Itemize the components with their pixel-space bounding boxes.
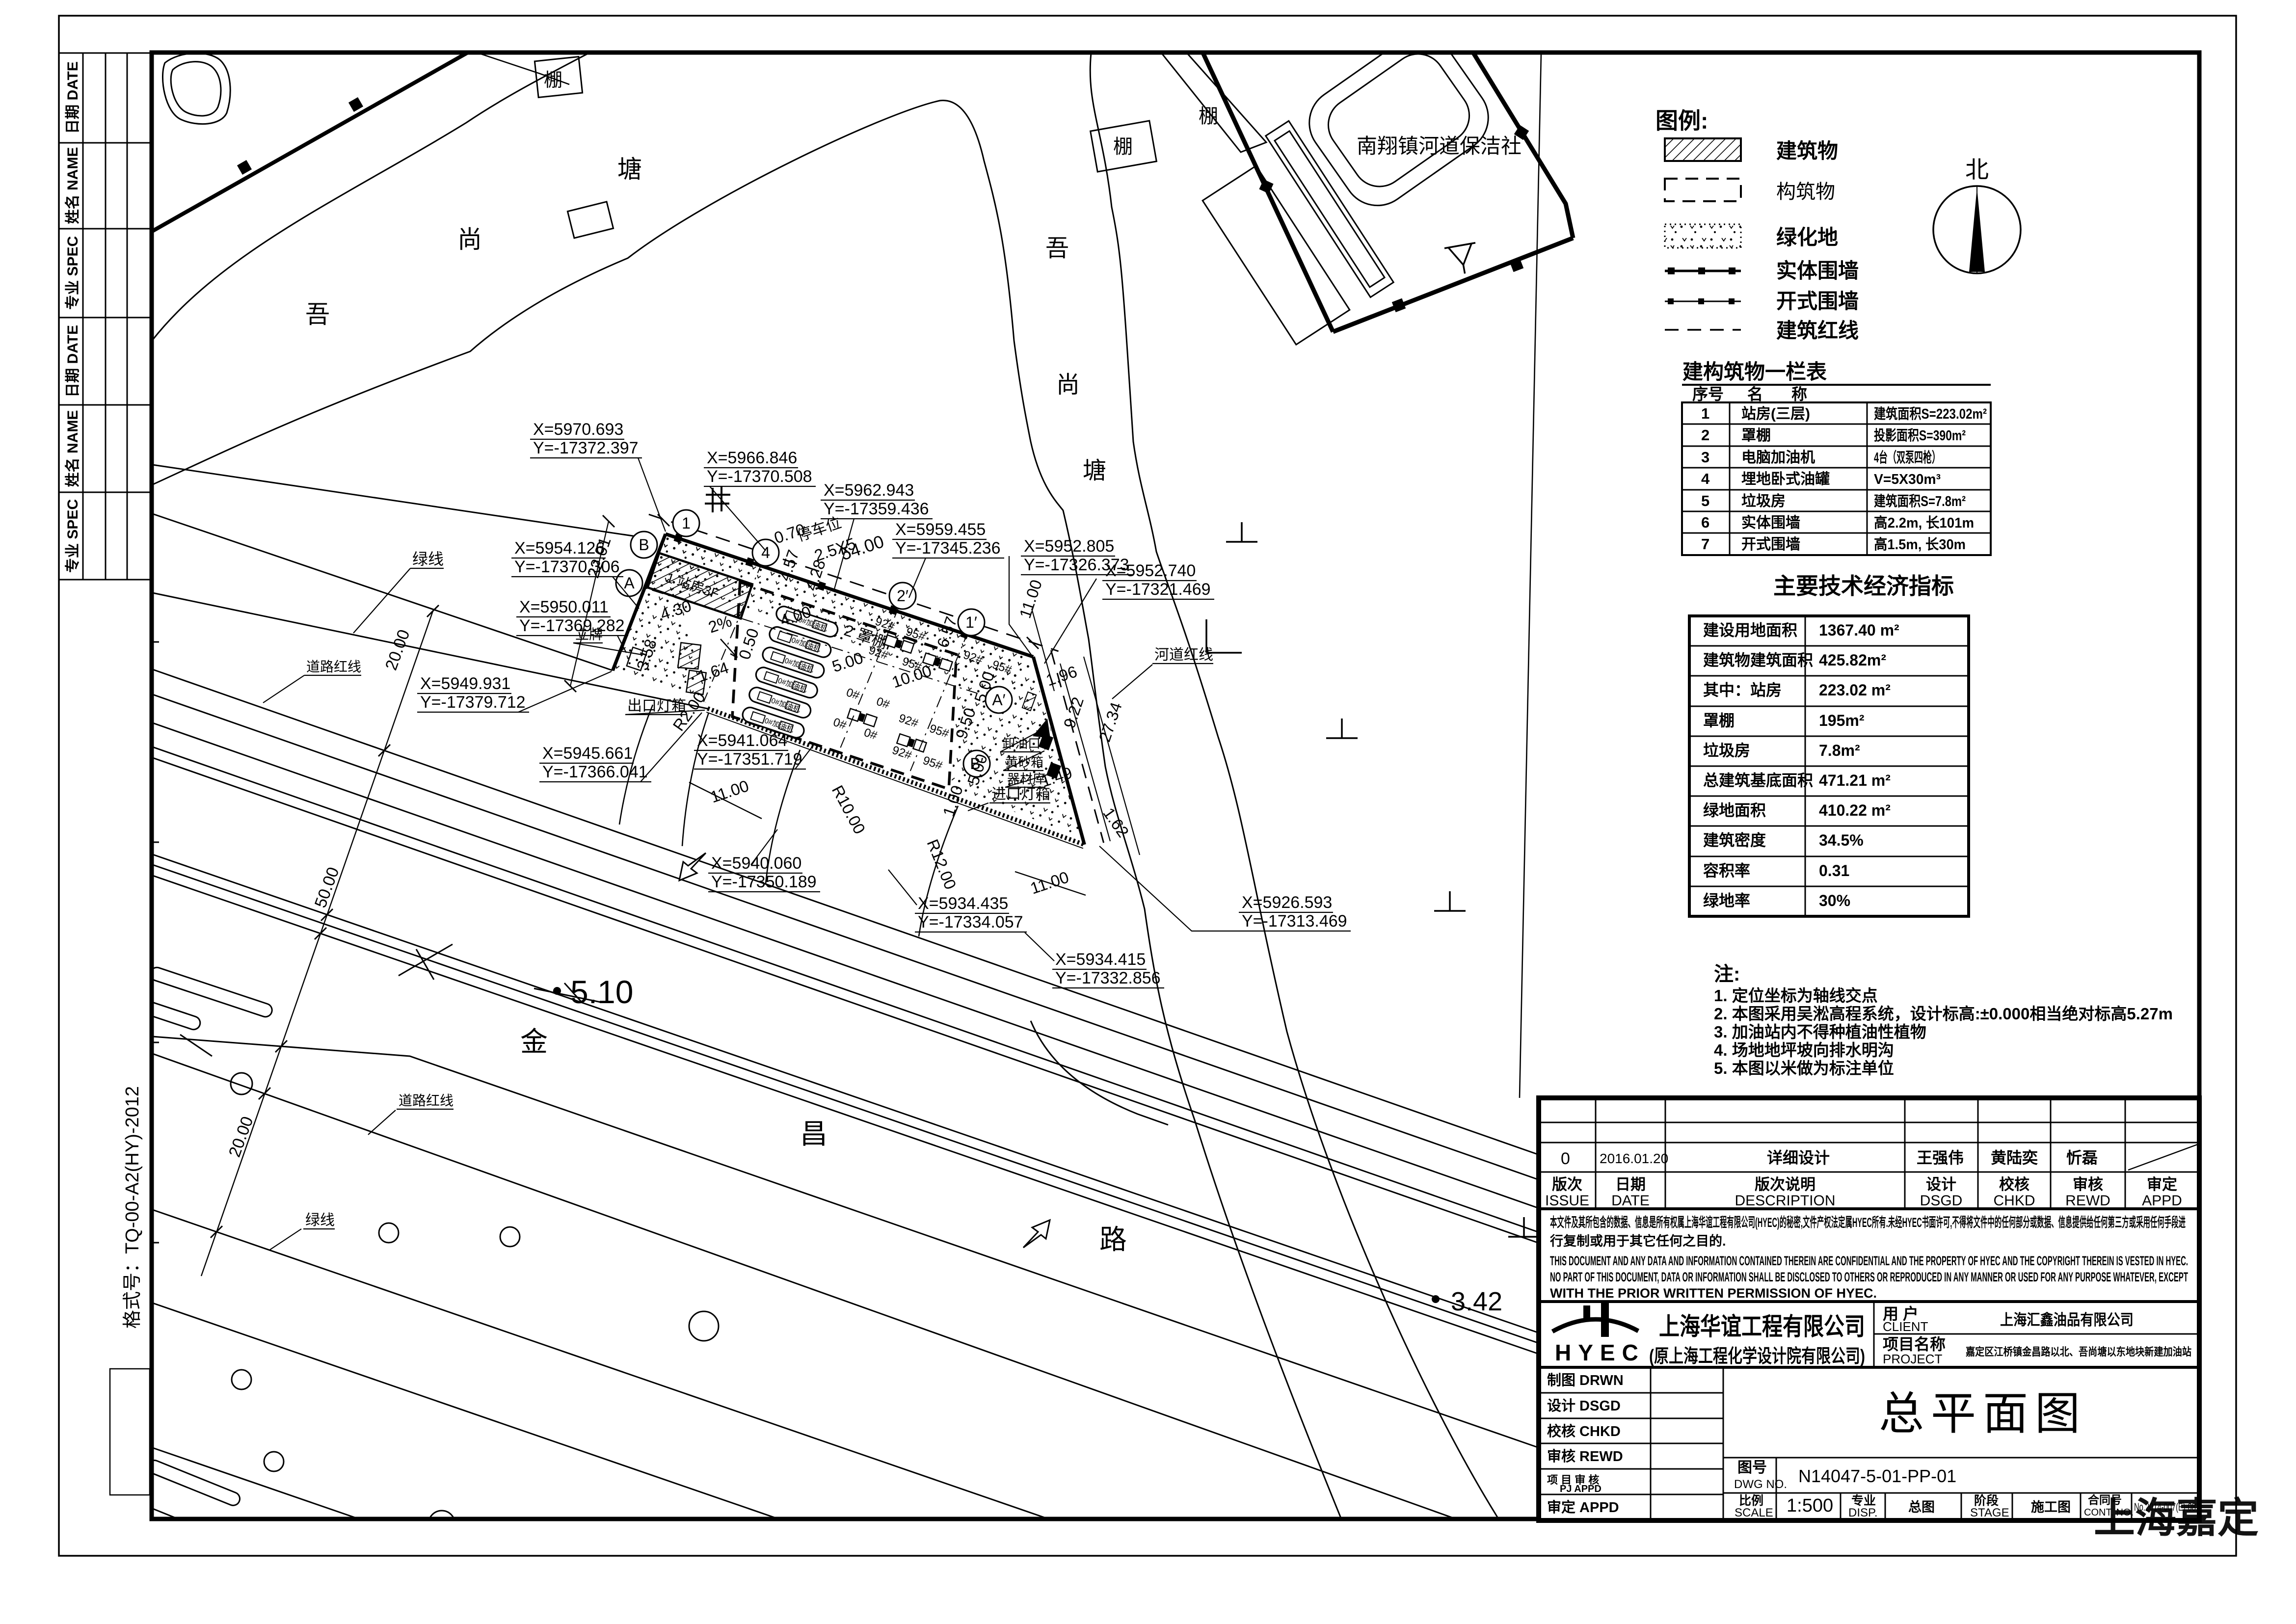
svg-text:223.02 m²: 223.02 m²: [1819, 681, 1891, 699]
svg-text:版次: 版次: [1552, 1176, 1582, 1193]
svg-text:实体围墙: 实体围墙: [1776, 259, 1859, 282]
svg-text:建设用地面积: 建设用地面积: [1703, 621, 1797, 639]
svg-text:1′: 1′: [965, 613, 977, 631]
svg-text:Y=-17345.236: Y=-17345.236: [895, 539, 1001, 558]
svg-text:STAGE: STAGE: [1970, 1506, 2009, 1519]
svg-text:高1.5m, 长30m: 高1.5m, 长30m: [1874, 536, 1966, 553]
svg-text:图号: 图号: [1737, 1460, 1767, 1476]
svg-text:嘉定区江桥镇金昌路以北、吾尚塘以东地块新建加油站: 嘉定区江桥镇金昌路以北、吾尚塘以东地块新建加油站: [1966, 1346, 2191, 1358]
svg-text:34.5%: 34.5%: [1819, 831, 1864, 849]
svg-text:DESCRIPTION: DESCRIPTION: [1735, 1193, 1835, 1209]
svg-text:Y=-17369.282: Y=-17369.282: [519, 616, 625, 635]
svg-text:站房(三层): 站房(三层): [1741, 406, 1810, 422]
svg-text:专业: 专业: [1851, 1493, 1876, 1508]
svg-text:Y=-17350.189: Y=-17350.189: [711, 873, 817, 891]
svg-text:1367.40 m²: 1367.40 m²: [1819, 621, 1899, 639]
svg-text:X=5959.455: X=5959.455: [895, 520, 986, 539]
svg-text:1:500: 1:500: [1787, 1495, 1833, 1516]
svg-text:其中：站房: 其中：站房: [1703, 681, 1782, 699]
svg-text:上海嘉定: 上海嘉定: [2094, 1495, 2259, 1541]
svg-text:总图: 总图: [1908, 1500, 1935, 1515]
svg-text:高2.2m, 长101m: 高2.2m, 长101m: [1874, 515, 1974, 531]
svg-text:APPD: APPD: [2142, 1193, 2182, 1209]
svg-text:罩棚: 罩棚: [1741, 427, 1771, 444]
svg-text:DSGD: DSGD: [1920, 1193, 1963, 1209]
svg-text:专业 SPEC: 专业 SPEC: [65, 499, 81, 573]
svg-text:V=5X30m³: V=5X30m³: [1874, 472, 1941, 487]
svg-text:器材库: 器材库: [1007, 772, 1045, 786]
svg-text:X=5926.593: X=5926.593: [1242, 893, 1332, 912]
svg-text:绿化地: 绿化地: [1776, 226, 1838, 249]
svg-text:B: B: [639, 536, 649, 554]
svg-text:立牌: 立牌: [575, 627, 603, 642]
svg-text:详细设计: 详细设计: [1767, 1149, 1830, 1167]
svg-text:南翔镇河道保洁社: 南翔镇河道保洁社: [1357, 134, 1522, 158]
svg-text:Y=-17313.469: Y=-17313.469: [1242, 912, 1347, 931]
svg-text:3. 加油站内不得种植油性植物: 3. 加油站内不得种植油性植物: [1714, 1023, 1926, 1041]
svg-text:471.21 m²: 471.21 m²: [1819, 772, 1891, 789]
svg-text:制图 DRWN: 制图 DRWN: [1547, 1372, 1624, 1388]
svg-text:1: 1: [682, 514, 691, 532]
svg-text:序号: 序号: [1692, 385, 1724, 403]
svg-text:REWD: REWD: [2065, 1193, 2110, 1209]
svg-text:Y=-17321.469: Y=-17321.469: [1105, 580, 1211, 599]
svg-text:审定 APPD: 审定 APPD: [1547, 1499, 1619, 1516]
svg-text:版次说明: 版次说明: [1755, 1176, 1815, 1193]
svg-text:金: 金: [520, 1026, 548, 1057]
svg-text:王强伟: 王强伟: [1917, 1149, 1964, 1167]
svg-text:Y=-17351.719: Y=-17351.719: [697, 750, 802, 769]
svg-text:项目名称: 项目名称: [1883, 1335, 1946, 1353]
svg-text:本文件及其所包含的数据、信息是所有权属上海华谊工程有限公司(: 本文件及其所包含的数据、信息是所有权属上海华谊工程有限公司(HYEC)的秘密,文…: [1550, 1215, 2186, 1230]
svg-text:A′: A′: [992, 691, 1005, 709]
svg-text:4台（双泵四枪）: 4台（双泵四枪）: [1874, 449, 1941, 466]
svg-text:实体围墙: 实体围墙: [1741, 514, 1800, 531]
svg-text:垃圾房: 垃圾房: [1741, 493, 1786, 509]
svg-text:专业 SPEC: 专业 SPEC: [65, 236, 81, 310]
svg-text:2. 本图采用吴淞高程系统，设计标高:±0.000相当绝对标: 2. 本图采用吴淞高程系统，设计标高:±0.000相当绝对标高5.27m: [1714, 1005, 2173, 1023]
svg-text:建筑物建筑面积: 建筑物建筑面积: [1703, 651, 1813, 669]
svg-text:0.31: 0.31: [1819, 862, 1849, 879]
svg-text:日期: 日期: [1615, 1176, 1646, 1193]
svg-text:吾: 吾: [305, 301, 330, 328]
svg-text:CLIENT: CLIENT: [1883, 1319, 1928, 1334]
svg-text:格式号：TQ-00-A2(HY)-2012: 格式号：TQ-00-A2(HY)-2012: [122, 1086, 143, 1329]
svg-text:CHKD: CHKD: [1993, 1193, 2035, 1209]
svg-text:1: 1: [1701, 405, 1709, 422]
svg-text:X=5952.805: X=5952.805: [1024, 537, 1114, 556]
svg-text:X=5949.931: X=5949.931: [420, 674, 510, 693]
svg-text:进口灯箱: 进口灯箱: [991, 786, 1050, 802]
svg-text:河道红线: 河道红线: [1154, 647, 1213, 663]
svg-text:建筑面积S=223.02m²: 建筑面积S=223.02m²: [1874, 406, 1987, 422]
svg-text:尚: 尚: [457, 226, 482, 253]
svg-text:A: A: [624, 574, 635, 592]
svg-text:Y=-17334.057: Y=-17334.057: [918, 913, 1023, 932]
svg-text:SCALE: SCALE: [1735, 1506, 1773, 1519]
svg-text:DISP.: DISP.: [1848, 1506, 1878, 1519]
svg-text:7: 7: [1701, 535, 1709, 553]
svg-text:2′: 2′: [897, 587, 908, 605]
svg-text:DWG NO.: DWG NO.: [1734, 1478, 1787, 1491]
svg-text:X=5952.740: X=5952.740: [1105, 561, 1196, 580]
svg-text:3.42: 3.42: [1451, 1287, 1502, 1316]
svg-text:注:: 注:: [1714, 963, 1740, 985]
svg-text:图例:: 图例:: [1655, 108, 1708, 133]
svg-text:绿地面积: 绿地面积: [1703, 801, 1766, 819]
svg-text:姓名 NAME: 姓名 NAME: [65, 410, 81, 487]
svg-text:Y=-17370.306: Y=-17370.306: [514, 558, 620, 576]
svg-text:5.10: 5.10: [570, 974, 633, 1010]
svg-text:Y=-17370.508: Y=-17370.508: [707, 467, 812, 486]
svg-text:埋地卧式油罐: 埋地卧式油罐: [1741, 471, 1830, 487]
svg-text:30%: 30%: [1819, 892, 1850, 909]
svg-text:上海汇鑫油品有限公司: 上海汇鑫油品有限公司: [2000, 1311, 2134, 1329]
svg-text:日期 DATE: 日期 DATE: [65, 61, 81, 134]
svg-text:棚: 棚: [544, 70, 562, 91]
svg-text:(原上海工程化学设计院有限公司): (原上海工程化学设计院有限公司): [1649, 1346, 1865, 1367]
svg-text:审核 REWD: 审核 REWD: [1547, 1448, 1623, 1464]
svg-text:HYEC: HYEC: [1555, 1340, 1645, 1365]
svg-text:DATE: DATE: [1611, 1193, 1650, 1209]
svg-text:Y=-17359.436: Y=-17359.436: [824, 500, 929, 518]
svg-text:塘: 塘: [1083, 458, 1106, 484]
svg-text:WITH THE PRIOR WRITTEN PERMISS: WITH THE PRIOR WRITTEN PERMISSION OF HYE…: [1550, 1286, 1877, 1301]
svg-text:罩棚: 罩棚: [1703, 712, 1735, 729]
svg-text:X=5941.064: X=5941.064: [697, 731, 787, 750]
svg-text:PJ APPD: PJ APPD: [1560, 1484, 1602, 1494]
svg-text:校核 CHKD: 校核 CHKD: [1547, 1423, 1621, 1439]
svg-text:THIS DOCUMENT AND ANY DATA AND: THIS DOCUMENT AND ANY DATA AND INFORMATI…: [1550, 1253, 2188, 1268]
svg-text:姓名 NAME: 姓名 NAME: [65, 147, 81, 224]
svg-text:忻磊: 忻磊: [2066, 1149, 2098, 1167]
svg-text:北: 北: [1965, 157, 1989, 183]
svg-text:X=5934.415: X=5934.415: [1055, 950, 1146, 969]
svg-text:吾: 吾: [1045, 236, 1069, 262]
svg-text:审定: 审定: [2147, 1176, 2177, 1193]
svg-text:绿线: 绿线: [412, 550, 444, 568]
svg-text:ISSUE: ISSUE: [1545, 1193, 1589, 1209]
svg-text:校核: 校核: [1999, 1176, 2029, 1193]
svg-text:X=5950.011: X=5950.011: [519, 598, 609, 616]
svg-text:塘: 塘: [617, 156, 642, 183]
svg-text:X=5954.126: X=5954.126: [514, 539, 605, 558]
svg-text:设计 DSGD: 设计 DSGD: [1547, 1398, 1621, 1414]
svg-text:比例: 比例: [1739, 1494, 1763, 1508]
svg-text:行复制或用于其它任何之目的.: 行复制或用于其它任何之目的.: [1549, 1233, 1726, 1249]
svg-text:日期 DATE: 日期 DATE: [65, 325, 81, 398]
svg-text:审核: 审核: [2073, 1176, 2103, 1193]
svg-text:1. 定位坐标为轴线交点: 1. 定位坐标为轴线交点: [1714, 986, 1878, 1005]
svg-text:410.22 m²: 410.22 m²: [1819, 801, 1891, 819]
svg-text:绿地率: 绿地率: [1703, 892, 1750, 909]
svg-text:2016.01.20: 2016.01.20: [1600, 1151, 1668, 1166]
svg-text:阶段: 阶段: [1974, 1493, 1999, 1508]
svg-text:建筑红线: 建筑红线: [1776, 319, 1859, 342]
svg-text:PROJECT: PROJECT: [1883, 1352, 1942, 1366]
svg-text:构筑物: 构筑物: [1776, 181, 1835, 203]
svg-text:X=5962.943: X=5962.943: [824, 481, 914, 500]
svg-text:7.8m²: 7.8m²: [1819, 742, 1860, 759]
svg-text:6: 6: [1701, 514, 1709, 531]
svg-text:电脑加油机: 电脑加油机: [1741, 450, 1815, 466]
svg-text:投影面积S=390m²: 投影面积S=390m²: [1874, 427, 1966, 444]
svg-text:建筑密度: 建筑密度: [1703, 831, 1766, 849]
svg-text:尚: 尚: [1056, 372, 1080, 398]
svg-text:195m²: 195m²: [1819, 712, 1865, 729]
svg-text:Y=-17332.856: Y=-17332.856: [1055, 969, 1161, 987]
svg-text:施工图: 施工图: [2031, 1500, 2071, 1515]
svg-text:总平面图: 总平面图: [1879, 1389, 2087, 1439]
svg-text:昌: 昌: [800, 1118, 828, 1149]
svg-text:设计: 设计: [1926, 1176, 1956, 1193]
svg-text:开式围墙: 开式围墙: [1776, 290, 1859, 313]
svg-text:X=5966.846: X=5966.846: [707, 449, 797, 467]
svg-text:3: 3: [1701, 449, 1709, 466]
svg-text:4. 场地地坪坡向排水明沟: 4. 场地地坪坡向排水明沟: [1714, 1041, 1894, 1059]
svg-text:道路红线: 道路红线: [399, 1093, 454, 1108]
svg-text:N14047-5-01-PP-01: N14047-5-01-PP-01: [1798, 1466, 1956, 1486]
svg-text:X=5970.693: X=5970.693: [533, 420, 623, 439]
svg-text:2: 2: [1701, 426, 1709, 444]
svg-text:上海华谊工程有限公司: 上海华谊工程有限公司: [1659, 1313, 1865, 1340]
svg-text:X=5934.435: X=5934.435: [918, 894, 1008, 913]
svg-text:5: 5: [1701, 492, 1709, 509]
svg-text:黄陆奕: 黄陆奕: [1991, 1149, 2038, 1167]
svg-text:称: 称: [1791, 385, 1807, 403]
svg-text:Y=-17366.041: Y=-17366.041: [542, 763, 648, 781]
svg-text:Y=-17372.397: Y=-17372.397: [533, 439, 639, 457]
svg-text:卸油口: 卸油口: [1002, 736, 1041, 751]
svg-text:4: 4: [1701, 470, 1710, 487]
svg-text:路: 路: [1099, 1224, 1127, 1255]
svg-text:垃圾房: 垃圾房: [1703, 742, 1750, 759]
svg-text:绿线: 绿线: [305, 1212, 335, 1228]
svg-text:425.82m²: 425.82m²: [1819, 651, 1886, 669]
svg-text:棚: 棚: [1199, 106, 1218, 127]
svg-text:建构筑物一栏表: 建构筑物一栏表: [1682, 360, 1827, 383]
svg-text:0: 0: [1561, 1149, 1570, 1168]
svg-text:X=5945.661: X=5945.661: [542, 744, 633, 763]
svg-text:建筑面积S=7.8m²: 建筑面积S=7.8m²: [1874, 493, 1966, 509]
svg-text:5. 本图以米做为标注单位: 5. 本图以米做为标注单位: [1714, 1059, 1894, 1077]
svg-text:总建筑基底面积: 总建筑基底面积: [1703, 772, 1813, 789]
svg-text:Y=-17379.712: Y=-17379.712: [420, 693, 526, 712]
svg-text:容积率: 容积率: [1703, 862, 1750, 879]
svg-text:名: 名: [1747, 385, 1763, 403]
svg-text:道路红线: 道路红线: [306, 659, 361, 674]
svg-text:NO PART OF THIS DOCUMENT, DATA: NO PART OF THIS DOCUMENT, DATA OR INFORM…: [1550, 1270, 2188, 1284]
svg-text:建筑物: 建筑物: [1776, 139, 1838, 162]
svg-text:棚: 棚: [1113, 136, 1133, 158]
svg-text:主要技术经济指标: 主要技术经济指标: [1773, 573, 1954, 599]
svg-text:开式围墙: 开式围墙: [1741, 536, 1800, 553]
